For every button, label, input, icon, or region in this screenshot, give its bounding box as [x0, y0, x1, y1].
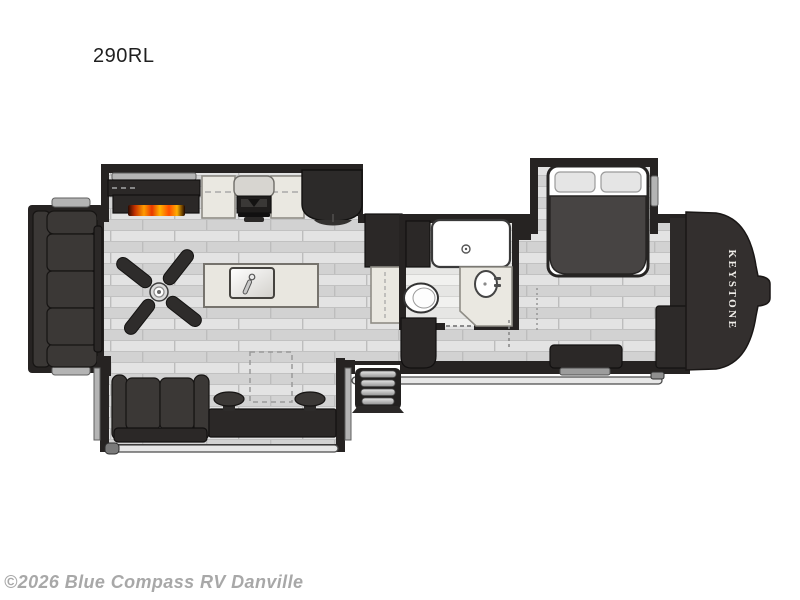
faucet	[249, 274, 255, 280]
floorplan-graphic: KEYSTONE	[0, 0, 800, 600]
kitchen-island	[204, 264, 318, 307]
slide-flange	[94, 368, 100, 440]
bar-counter	[209, 409, 336, 437]
kitchen-counter-right	[271, 176, 304, 218]
front-cap: KEYSTONE	[686, 212, 770, 370]
vanity-sink	[460, 267, 512, 326]
bathroom-cabinet	[406, 221, 430, 267]
range-stove	[234, 176, 274, 222]
kitchen-counter-left	[202, 176, 235, 218]
pillow	[601, 172, 641, 192]
slide-flange	[112, 173, 196, 180]
refrigerator	[302, 170, 362, 226]
fireplace-flames	[128, 205, 185, 216]
rear-sofa	[33, 211, 102, 367]
dealer-watermark: ©2026 Blue Compass RV Danville	[4, 572, 303, 593]
floorplan-page: 290RL	[0, 0, 800, 600]
theater-loveseat	[112, 375, 209, 442]
awning-slide-topper	[105, 443, 338, 454]
entry-door-header	[352, 361, 400, 365]
island-sink	[230, 268, 274, 298]
keystone-logo-text: KEYSTONE	[726, 250, 738, 331]
blanket	[550, 196, 646, 274]
entry-steps	[352, 368, 404, 413]
rear-sofa-slide	[28, 198, 104, 375]
slide-flange	[52, 198, 90, 207]
queen-bed	[548, 166, 648, 276]
pantry	[365, 214, 402, 267]
bottom-wall	[400, 361, 690, 374]
shower	[432, 220, 510, 267]
bed-slide	[530, 158, 658, 276]
toilet	[404, 284, 438, 313]
awning-hook	[651, 372, 664, 379]
pillow	[555, 172, 595, 192]
nightstand	[651, 176, 658, 206]
linen-cabinet	[371, 267, 400, 323]
slide-flange	[345, 368, 351, 440]
entry-door	[401, 318, 436, 368]
